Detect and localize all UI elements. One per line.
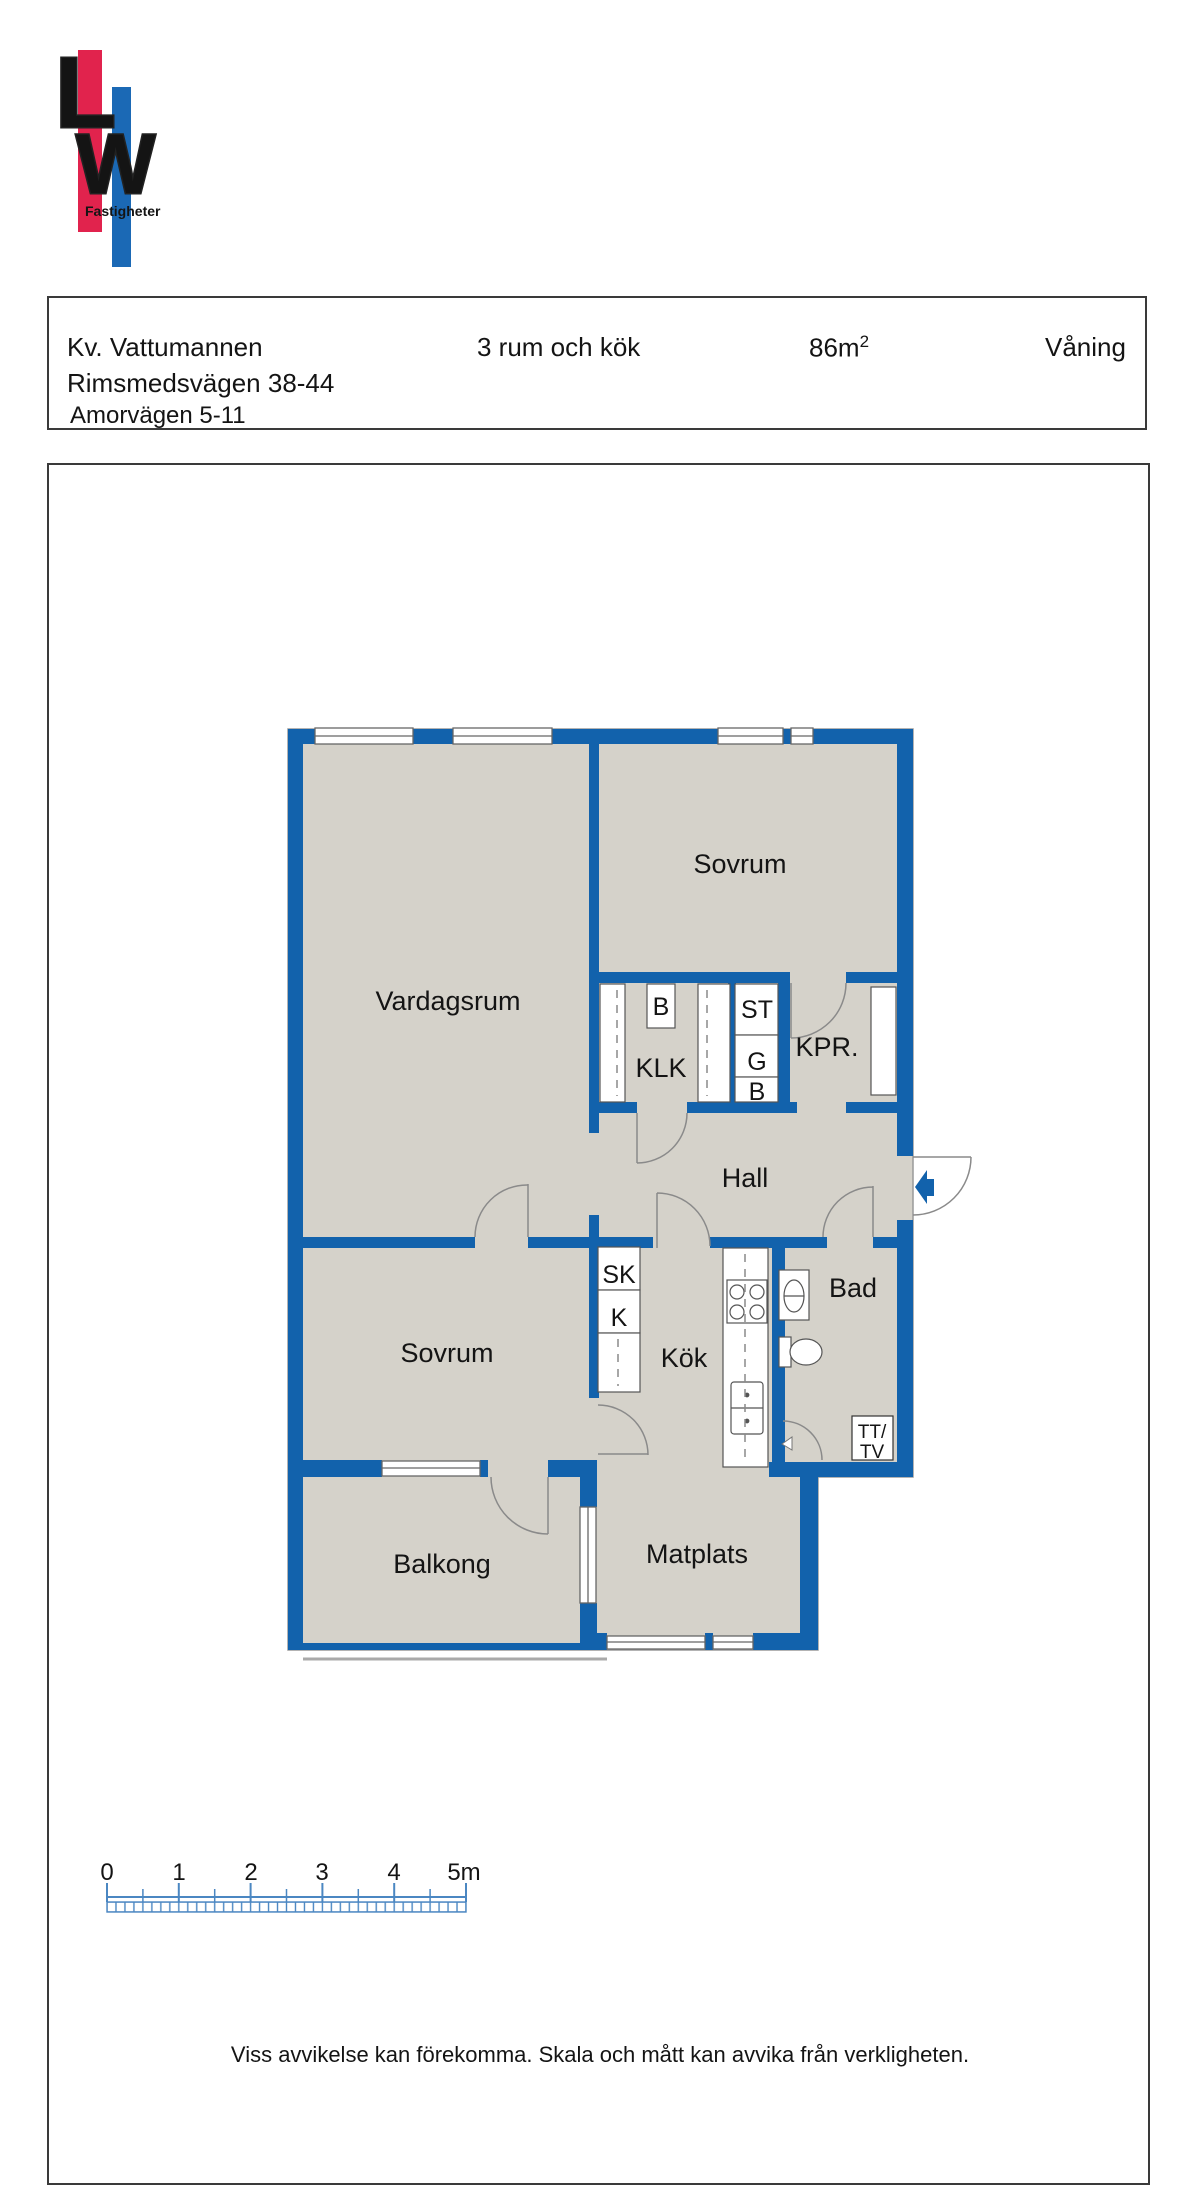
- room-count: 3 rum och kök: [477, 332, 640, 363]
- wall-hall-bottom: [528, 1237, 653, 1248]
- label-k: K: [611, 1304, 628, 1332]
- wall-bedroom1-bottom: [589, 972, 790, 983]
- scale-tick-3: 3: [315, 1859, 328, 1886]
- wall-matplats-right: [800, 1477, 818, 1650]
- address-line-1: Rimsmedsvägen 38-44: [67, 368, 334, 399]
- wall-matplats-bottom: [705, 1633, 713, 1650]
- closet-shelf: [598, 1333, 640, 1392]
- wall-bedroom2-bottom: [288, 1460, 382, 1477]
- scale-bar: 0 1 2 3 4 5m: [100, 1859, 480, 1912]
- label-kok: Kök: [661, 1343, 708, 1373]
- label-sk: SK: [602, 1261, 636, 1289]
- wall-balcony-divider: [580, 1603, 597, 1650]
- label-tv: TV: [860, 1442, 885, 1463]
- stove-burner: [750, 1305, 764, 1319]
- wall-kitchen-top: [710, 1237, 827, 1248]
- area-value: 86m: [809, 333, 860, 363]
- wall-kitchen-top: [873, 1237, 897, 1248]
- wall-bedroom1-bottom: [846, 972, 897, 983]
- entrance-arrow-icon: [915, 1170, 934, 1204]
- wall-right-exterior: [897, 1220, 913, 1477]
- wall-top: [288, 729, 315, 744]
- wall-bedroom2-bottom: [480, 1460, 488, 1477]
- stove-burner: [750, 1285, 764, 1299]
- label-st: ST: [741, 996, 773, 1024]
- label-klk: KLK: [635, 1053, 686, 1083]
- label-b2: B: [749, 1078, 766, 1106]
- scale-tick-1: 1: [172, 1859, 185, 1886]
- scale-tick-5: 5m: [447, 1859, 480, 1886]
- scale-tick-0: 0: [100, 1859, 113, 1886]
- wall-klk-bottom: [589, 1102, 637, 1113]
- wall-matplats-bottom: [753, 1633, 818, 1650]
- wall-klk-bottom: [687, 1102, 797, 1113]
- floor-label: Våning: [1045, 332, 1126, 363]
- wall-top: [413, 729, 453, 744]
- klk-wardrobe: [600, 984, 625, 1102]
- header-box: Kv. Vattumannen Rimsmedsvägen 38-44 Amor…: [47, 296, 1147, 430]
- wall-bedroom2-bottom: [548, 1460, 597, 1477]
- stove-burner: [730, 1305, 744, 1319]
- apartment-area: 86m2: [809, 332, 869, 364]
- wall-right-exterior: [897, 729, 913, 1156]
- wall-hall-bottom: [303, 1237, 475, 1248]
- klk-wardrobe: [698, 984, 730, 1102]
- scale-ruler: [107, 1883, 466, 1902]
- label-sovrum-1: Sovrum: [693, 849, 786, 879]
- wall-balcony-divider: [580, 1477, 597, 1507]
- scale-ruler-cells: [107, 1902, 466, 1912]
- wall-kpr-divider: [778, 983, 790, 1102]
- project-name: Kv. Vattumannen: [67, 332, 263, 363]
- label-kpr: KPR.: [795, 1032, 858, 1062]
- label-g: G: [747, 1048, 766, 1076]
- label-sovrum-2: Sovrum: [400, 1338, 493, 1368]
- wall-top: [552, 729, 718, 744]
- logo-subtitle: Fastigheter: [85, 203, 161, 219]
- apartment-footprint: [288, 729, 913, 1650]
- scale-tick-2: 2: [244, 1859, 257, 1886]
- toilet-tank: [779, 1337, 791, 1367]
- label-hall: Hall: [722, 1163, 769, 1193]
- kpr-cabinet: [871, 987, 896, 1095]
- label-balkong: Balkong: [393, 1549, 491, 1579]
- label-matplats: Matplats: [646, 1539, 748, 1569]
- wall-left-exterior: [288, 729, 303, 1650]
- wall-livingroom-divider: [589, 744, 599, 1133]
- wall-top: [783, 729, 791, 744]
- label-vardagsrum: Vardagsrum: [375, 986, 520, 1016]
- label-bad: Bad: [829, 1273, 877, 1303]
- floor-plan: Vardagsrum Sovrum KLK KPR. Hall Sovrum K…: [47, 463, 1150, 2185]
- scale-tick-4: 4: [387, 1859, 400, 1886]
- stove-burner: [730, 1285, 744, 1299]
- company-logo: L W Fastigheter: [40, 30, 180, 280]
- balcony-railing: [303, 1643, 580, 1650]
- wall-bath-bottom: [769, 1462, 913, 1477]
- label-b1: B: [653, 993, 670, 1021]
- disclaimer-text: Viss avvikelse kan förekomma. Skala och …: [231, 2042, 969, 2067]
- wall-kpr-bottom: [846, 1102, 897, 1113]
- label-tt: TT/: [858, 1422, 887, 1443]
- address-line-2: Amorvägen 5-11: [70, 402, 246, 430]
- toilet-bowl: [790, 1339, 822, 1365]
- area-superscript: 2: [860, 332, 869, 351]
- logo-letter-w: W: [76, 117, 156, 211]
